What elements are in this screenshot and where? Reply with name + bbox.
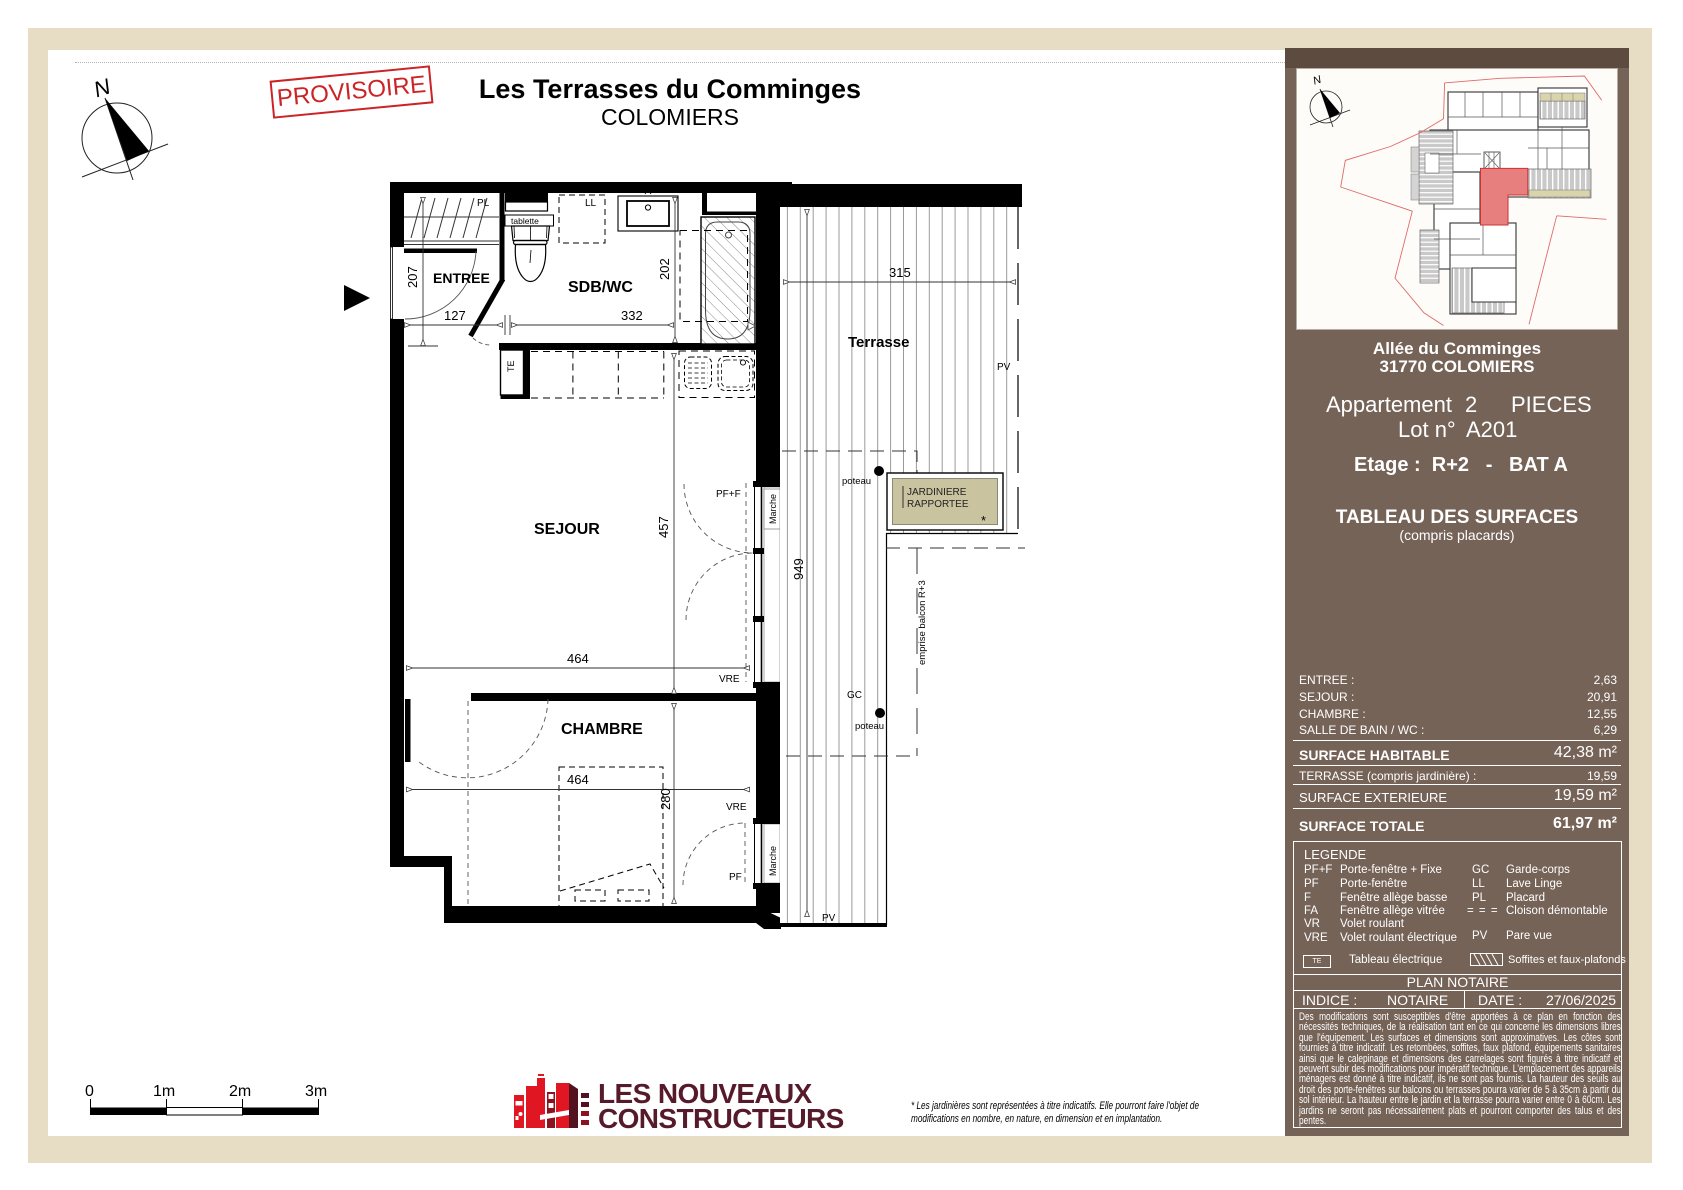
svg-text:CONSTRUCTEURS: CONSTRUCTEURS <box>598 1103 844 1134</box>
svg-text:poteau: poteau <box>855 721 884 732</box>
svg-text:PF+F: PF+F <box>716 489 741 500</box>
svg-text:SEJOUR: SEJOUR <box>534 521 600 538</box>
svg-text:PL: PL <box>477 198 490 209</box>
svg-text:LL: LL <box>585 198 597 209</box>
svg-text:tablette: tablette <box>511 216 539 226</box>
svg-text:457: 457 <box>656 516 671 538</box>
svg-text:3m: 3m <box>305 1083 327 1100</box>
svg-text:332: 332 <box>621 308 643 323</box>
svg-text:*: * <box>981 513 986 528</box>
svg-text:CHAMBRE: CHAMBRE <box>561 721 643 738</box>
svg-text:N: N <box>91 73 114 102</box>
svg-text:PV: PV <box>822 913 836 924</box>
svg-text:SDB/WC: SDB/WC <box>568 279 633 296</box>
svg-text:0: 0 <box>85 1083 94 1100</box>
svg-text:GC: GC <box>847 690 862 701</box>
svg-text:VRE: VRE <box>726 802 747 813</box>
svg-text:emprise balcon R+3: emprise balcon R+3 <box>917 580 928 665</box>
svg-text:949: 949 <box>791 558 806 580</box>
svg-text:464: 464 <box>567 772 589 787</box>
svg-text:202: 202 <box>657 258 672 280</box>
svg-text:2m: 2m <box>229 1083 251 1100</box>
svg-text:N: N <box>1312 74 1323 88</box>
svg-text:PF: PF <box>729 872 742 883</box>
svg-text:poteau: poteau <box>842 476 871 487</box>
svg-text:Terrasse: Terrasse <box>848 334 909 351</box>
svg-text:127: 127 <box>444 308 466 323</box>
svg-text:Marche: Marche <box>768 494 778 524</box>
svg-text:315: 315 <box>889 265 911 280</box>
svg-text:280: 280 <box>658 788 673 810</box>
svg-text:RAPPORTEE: RAPPORTEE <box>907 499 969 510</box>
svg-text:VRE: VRE <box>719 674 740 685</box>
svg-text:207: 207 <box>405 266 420 288</box>
svg-text:TE: TE <box>506 360 516 372</box>
svg-text:PV: PV <box>997 362 1011 373</box>
svg-text:464: 464 <box>567 651 589 666</box>
svg-text:JARDINIERE: JARDINIERE <box>907 487 967 498</box>
svg-text:Marche: Marche <box>768 846 778 876</box>
svg-text:1m: 1m <box>153 1083 175 1100</box>
svg-text:ENTREE: ENTREE <box>433 270 490 286</box>
